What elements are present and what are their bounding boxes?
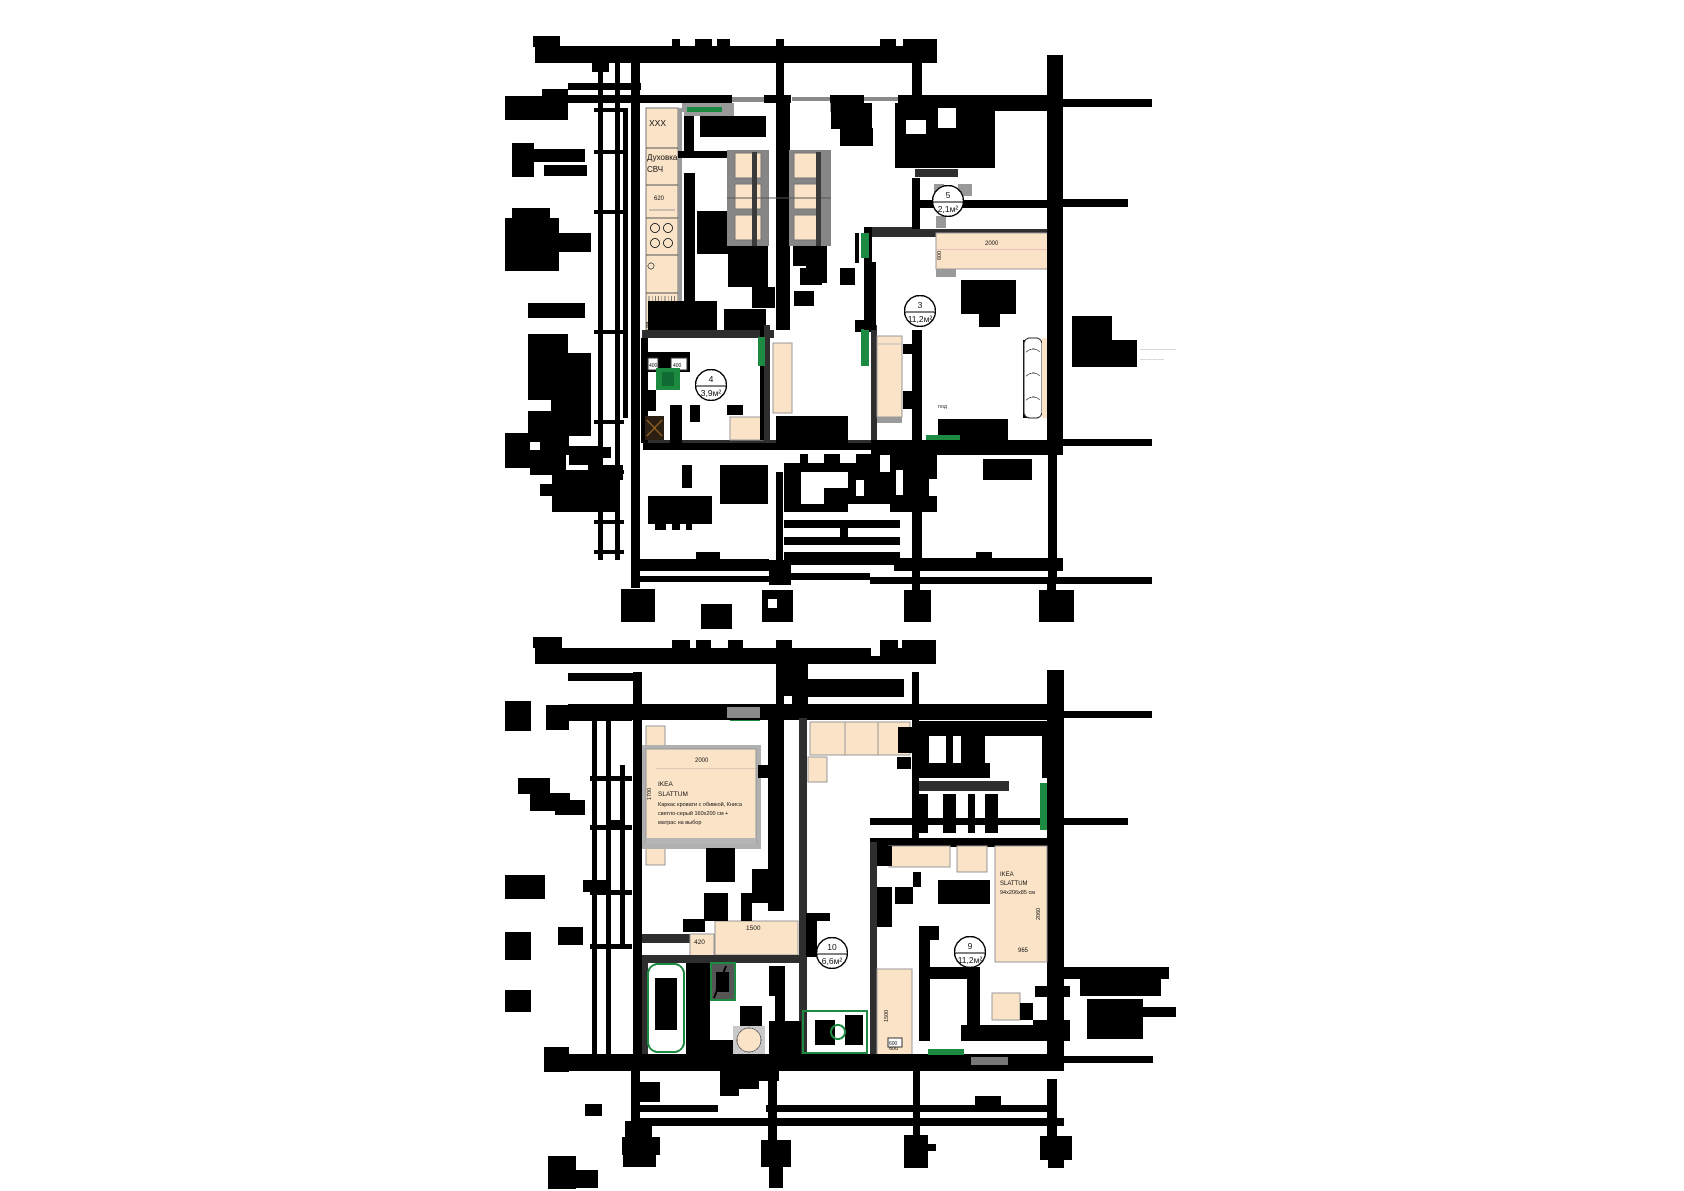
svg-text:светло-серый 160х200 см +: светло-серый 160х200 см +	[658, 810, 728, 817]
svg-text:XXX: XXX	[649, 118, 666, 128]
svg-text:1500: 1500	[746, 925, 761, 932]
svg-text:1500: 1500	[884, 1010, 890, 1022]
svg-text:9: 9	[968, 941, 973, 951]
svg-text:2060: 2060	[1036, 908, 1042, 920]
svg-text:11,2м²: 11,2м²	[908, 314, 933, 324]
svg-text:620: 620	[654, 196, 665, 202]
svg-text:IKEA: IKEA	[658, 781, 673, 788]
svg-text:5: 5	[946, 190, 951, 200]
svg-text:………………: ………………	[1140, 346, 1176, 352]
svg-text:IKEA: IKEA	[1000, 872, 1014, 878]
svg-text:600: 600	[889, 1041, 898, 1047]
svg-text:SLATTUM: SLATTUM	[1000, 881, 1028, 887]
svg-text:Духовка: Духовка	[647, 153, 678, 162]
svg-text:под: под	[938, 404, 948, 410]
svg-text:4: 4	[709, 374, 714, 384]
svg-text:3: 3	[918, 300, 923, 310]
svg-text:11,2м²: 11,2м²	[958, 955, 983, 965]
svg-text:420: 420	[694, 939, 705, 946]
svg-text:965: 965	[1018, 948, 1029, 954]
svg-text:2000: 2000	[985, 241, 999, 247]
svg-text:2,1м²: 2,1м²	[938, 204, 959, 214]
svg-text:600: 600	[937, 251, 943, 260]
svg-text:1700: 1700	[647, 788, 653, 800]
svg-text:SLATTUM: SLATTUM	[658, 791, 688, 798]
svg-text:3,9м²: 3,9м²	[701, 388, 722, 398]
svg-text:Каркас кровати с обивкой, Книс: Каркас кровати с обивкой, Книса	[658, 801, 743, 808]
svg-text:6,6м²: 6,6м²	[822, 956, 843, 966]
svg-text:10: 10	[827, 942, 837, 952]
svg-text:матрас на выбор: матрас на выбор	[658, 820, 701, 826]
svg-text:СВЧ: СВЧ	[647, 165, 663, 174]
svg-text:94х206х85 см: 94х206х85 см	[1000, 890, 1035, 896]
svg-text:2000: 2000	[695, 758, 709, 764]
svg-text:…………: …………	[1140, 356, 1164, 362]
